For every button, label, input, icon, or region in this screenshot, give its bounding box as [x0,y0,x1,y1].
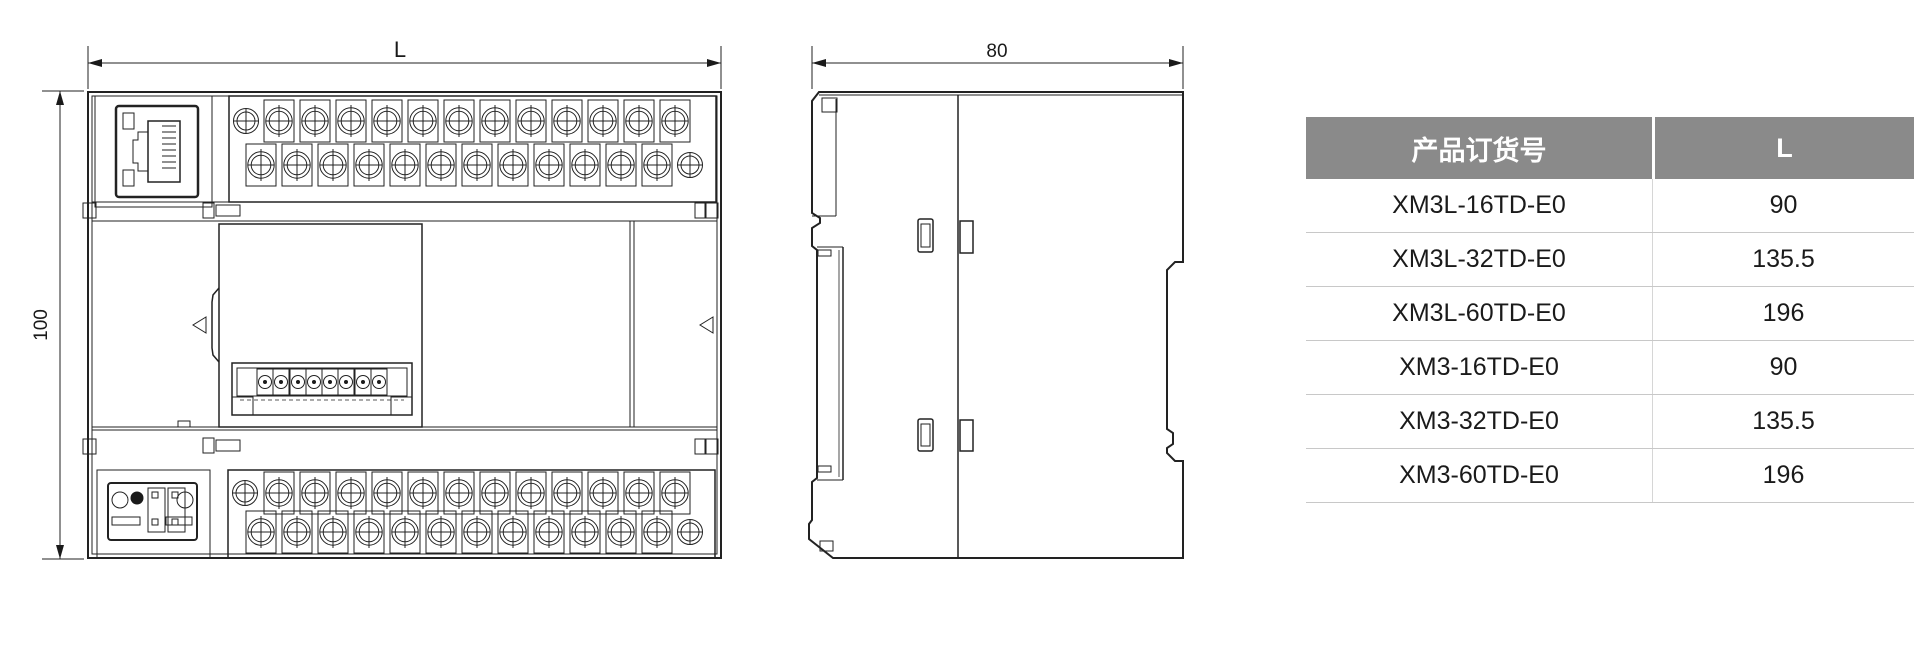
dimension-drawing-page: L 80 100 产品订货号 L XM3L-16TD-E0 90 [0,0,1920,659]
product-code-cell: XM3-60TD-E0 [1306,449,1653,502]
length-cell: 135.5 [1653,395,1914,448]
product-code-cell: XM3L-60TD-E0 [1306,287,1653,340]
length-cell: 135.5 [1653,233,1914,286]
dimension-80: 80 [812,41,1183,89]
product-code-cell: XM3-32TD-E0 [1306,395,1653,448]
front-middle-section [193,221,713,427]
expansion-connector [232,363,412,415]
table-row: XM3-32TD-E0 135.5 [1306,395,1914,449]
table-row: XM3-16TD-E0 90 [1306,341,1914,395]
ethernet-port-icon [95,96,212,207]
dimension-100: 100 [31,91,84,559]
power-connector [97,470,210,558]
product-code-cell: XM3L-32TD-E0 [1306,233,1653,286]
table-row: XM3L-32TD-E0 135.5 [1306,233,1914,287]
length-cell: 196 [1653,449,1914,502]
length-header: L [1655,117,1914,179]
length-cell: 196 [1653,287,1914,340]
front-width-label: L [394,37,406,62]
size-table: 产品订货号 L XM3L-16TD-E0 90 XM3L-32TD-E0 135… [1306,117,1914,503]
length-cell: 90 [1653,341,1914,394]
table-row: XM3L-60TD-E0 196 [1306,287,1914,341]
right-triangle-marker [700,317,713,333]
table-row: XM3-60TD-E0 196 [1306,449,1914,503]
case-clips [83,203,718,454]
din-rail-clips [918,219,973,451]
product-code-cell: XM3-16TD-E0 [1306,341,1653,394]
bottom-terminal-block [228,470,715,558]
length-cell: 90 [1653,179,1914,232]
top-terminal-block [229,96,716,202]
left-triangle-marker [193,317,206,333]
product-code-cell: XM3L-16TD-E0 [1306,179,1653,232]
front-height-label: 100 [31,309,52,341]
table-row: XM3L-16TD-E0 90 [1306,179,1914,233]
side-view-drawing [809,92,1183,558]
plc-dimension-drawing: L 80 100 [0,0,1220,659]
side-width-label: 80 [986,41,1007,62]
front-view-drawing [83,92,721,558]
dimension-L: L [88,37,721,89]
product-code-header: 产品订货号 [1306,117,1652,179]
table-header-row: 产品订货号 L [1306,117,1914,179]
